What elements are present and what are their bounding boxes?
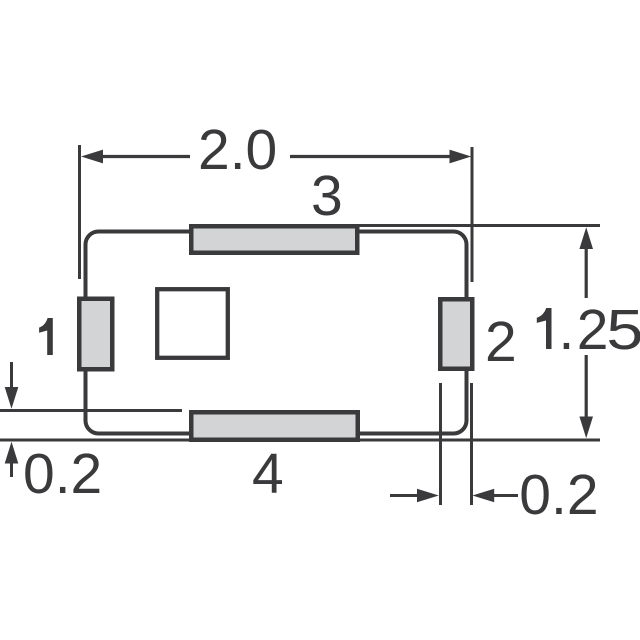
svg-text:.: . [559,298,575,362]
svg-text:3: 3 [311,164,343,228]
svg-text:2.0: 2.0 [198,118,277,182]
svg-text:0.2: 0.2 [519,463,598,527]
svg-text:2: 2 [577,298,609,362]
svg-text:0.2: 0.2 [23,442,102,506]
svg-text:4: 4 [252,442,284,506]
svg-text:5: 5 [606,298,640,361]
svg-text:2: 2 [485,310,517,374]
